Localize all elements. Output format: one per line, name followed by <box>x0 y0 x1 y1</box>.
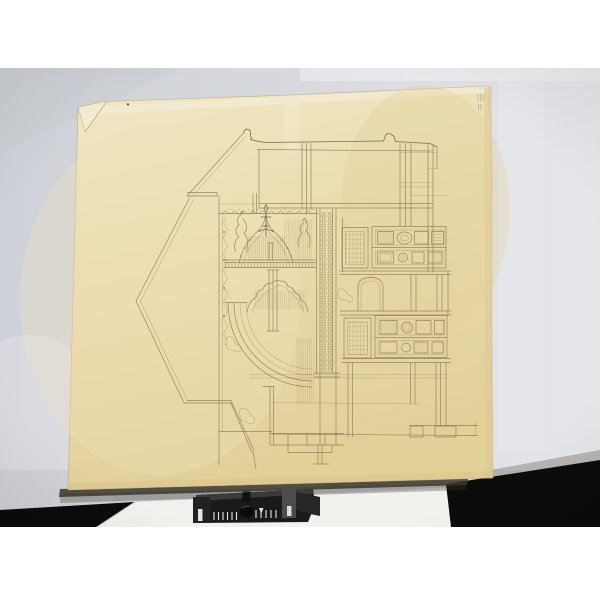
photo-canvas <box>0 0 600 600</box>
photo-vignette <box>0 68 600 527</box>
photo-of-architectural-drawing <box>0 0 600 600</box>
white-margin-top <box>0 0 600 68</box>
white-margin-bottom <box>0 527 600 600</box>
